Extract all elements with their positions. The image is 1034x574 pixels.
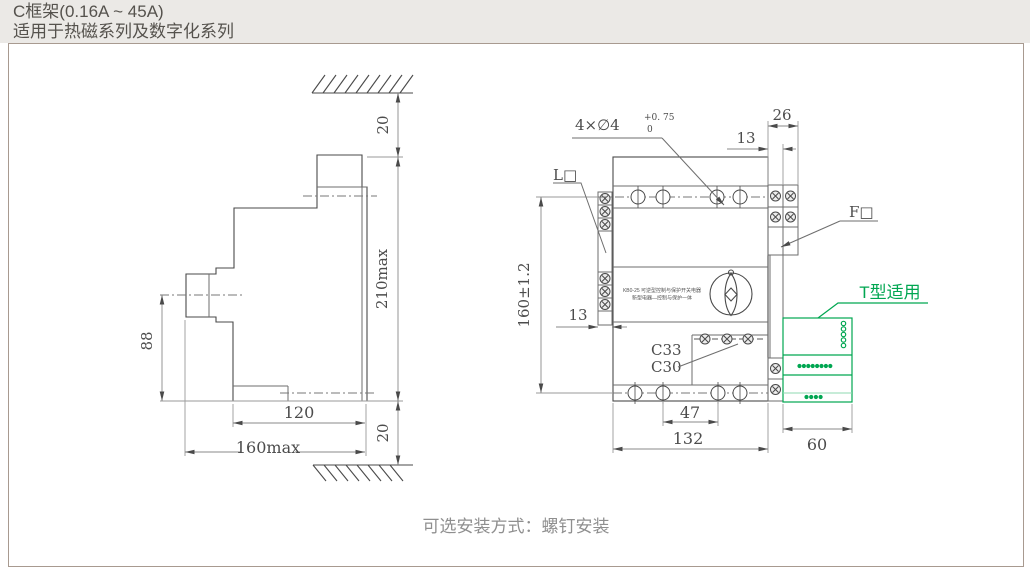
mounting-hole-icon (656, 186, 670, 208)
accessory-leader (818, 303, 928, 318)
label-frame-c30: C30 (651, 358, 682, 376)
screw-terminal-icon (600, 194, 610, 204)
screw-terminal-icon (743, 334, 753, 344)
label-frame-c33: C33 (651, 341, 682, 359)
side-centerlines (160, 196, 377, 393)
screw-terminal-icon (771, 191, 781, 201)
screw-terminal-icon (600, 220, 610, 230)
ceiling-hatch (312, 75, 413, 93)
dim-center-height: 88 (138, 331, 156, 350)
product-label-line1: KB0-25 可逆型控制与保护开关电器 (623, 287, 701, 294)
line-side-terminal-strip (598, 192, 612, 325)
label-holes-tol-lower: 0 (647, 125, 653, 135)
label-load-side: F□ (849, 203, 874, 221)
dim-rail-width: 26 (772, 106, 791, 124)
dim-depth-max: 160max (236, 438, 300, 457)
product-label-line2: 新型电器—控制与保护一体 (632, 295, 692, 302)
front-view-drawing: KB0-25 可逆型控制与保护开关电器 新型电器—控制与保护一体 C33 C30… (515, 106, 928, 454)
label-accessory-note: T型适用 (859, 283, 920, 302)
screw-terminal-icon (771, 385, 781, 395)
body-section-lines (613, 186, 768, 385)
dim-body-width: 132 (673, 429, 704, 448)
label-line-side: L□ (553, 166, 577, 184)
dim-rail-offset: 13 (736, 129, 755, 147)
screw-terminal-icon (722, 334, 732, 344)
mounting-hole-icon (631, 186, 645, 208)
screw-terminal-icon (771, 364, 781, 374)
screw-terminal-icon (600, 300, 610, 310)
hole-spec-callout: 4×∅4 +0. 75 0 (572, 113, 724, 205)
frame-leader-line (678, 344, 738, 367)
screw-terminal-icon (786, 191, 796, 201)
dim-depth-inner: 120 (284, 403, 315, 422)
dim-accessory-width: 60 (807, 435, 827, 454)
dim-strip-offset: 13 (568, 306, 587, 324)
mounting-caption: 可选安装方式：螺钉安装 (8, 512, 1024, 537)
page: C框架(0.16A ~ 45A) 适用于热磁系列及数字化系列 (0, 0, 1034, 574)
dim-height-tol: 160±1.2 (515, 262, 533, 327)
floor-hatch (313, 465, 413, 481)
screw-terminal-icon (700, 334, 710, 344)
t-type-accessory: T型适用 (783, 283, 928, 402)
dim-top-gap: 20 (374, 115, 392, 134)
screw-terminal-icon (600, 287, 610, 297)
rotary-handle-icon (710, 270, 752, 316)
screw-terminal-icon (771, 212, 781, 222)
load-side-leader-arrow (781, 221, 840, 247)
accessory-terminal-dots-row1 (797, 364, 832, 368)
dim-hole-pitch: 47 (680, 403, 700, 422)
dim-bottom-gap: 20 (374, 423, 392, 442)
accessory-terminal-dots-row2 (804, 395, 822, 399)
side-view-drawing: 20 210max 20 88 120 160max (138, 75, 413, 481)
aux-terminal-cover (692, 334, 768, 385)
dim-height-max: 210max (373, 248, 391, 309)
accessory-indicator-dots (841, 321, 845, 347)
side-profile (186, 155, 367, 401)
screw-terminal-icon (600, 207, 610, 217)
label-mounting-holes: 4×∅4 (575, 116, 620, 134)
screw-terminal-icon (600, 274, 610, 284)
screw-terminal-icon (786, 212, 796, 222)
label-holes-tol-upper: +0. 75 (644, 113, 675, 123)
side-dimensions: 20 210max 20 88 120 160max (138, 93, 403, 465)
mounting-hole-icon (733, 186, 747, 208)
dimension-drawing: 20 210max 20 88 120 160max (0, 0, 1034, 574)
